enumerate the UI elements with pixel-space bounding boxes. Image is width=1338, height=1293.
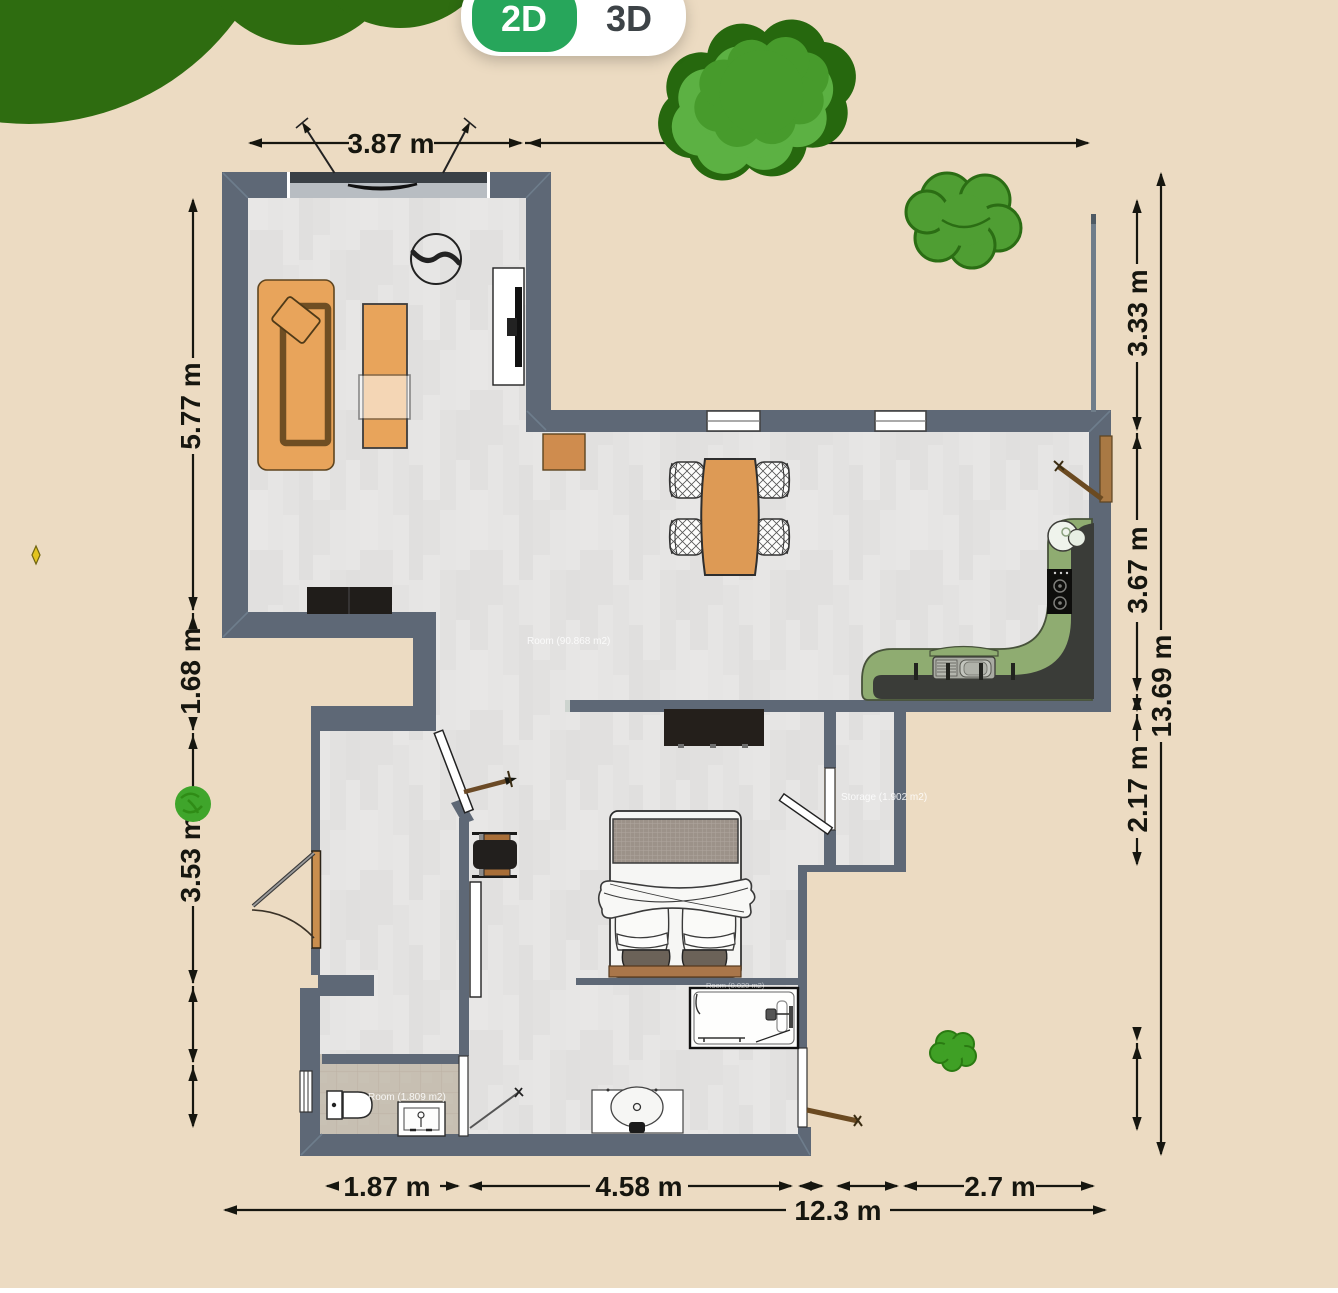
svg-text:2.7 m: 2.7 m [964, 1171, 1036, 1202]
svg-text:2D: 2D [501, 0, 547, 39]
svg-text:1.68 m: 1.68 m [175, 627, 206, 714]
svg-text:3.53 m: 3.53 m [175, 815, 206, 902]
svg-text:3.33 m: 3.33 m [1122, 269, 1153, 356]
svg-text:Room (90.868 m2): Room (90.868 m2) [527, 636, 610, 647]
svg-text:2.17 m: 2.17 m [1122, 745, 1153, 832]
svg-text:Storage (1.902 m2): Storage (1.902 m2) [841, 792, 927, 803]
svg-text:3.67 m: 3.67 m [1122, 526, 1153, 613]
svg-text:5.77 m: 5.77 m [175, 362, 206, 449]
svg-text:13.69 m: 13.69 m [1146, 635, 1177, 738]
svg-text:3.87 m: 3.87 m [347, 128, 434, 159]
svg-text:Room (0.020 m2): Room (0.020 m2) [706, 981, 765, 990]
svg-text:Room (1.809 m2): Room (1.809 m2) [368, 1092, 446, 1103]
svg-text:1.87 m: 1.87 m [343, 1171, 430, 1202]
svg-text:3D: 3D [606, 0, 652, 39]
svg-text:12.3 m: 12.3 m [794, 1195, 881, 1226]
svg-text:4.58 m: 4.58 m [595, 1171, 682, 1202]
